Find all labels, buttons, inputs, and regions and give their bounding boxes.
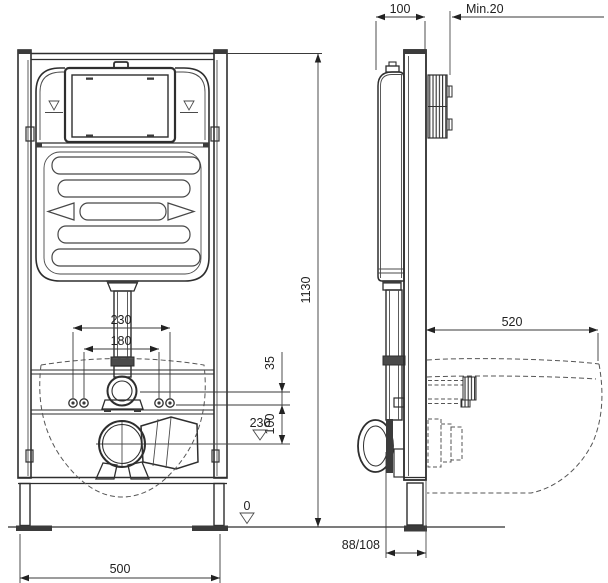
dim-frame-height: 1130: [227, 54, 322, 528]
level-marker-drain-label: 230: [250, 416, 271, 430]
inspection-window: [65, 68, 175, 142]
dim-bolts-inner-label: 180: [111, 334, 132, 348]
dim-frame-depth: 100: [376, 2, 425, 70]
level-marker-floor: 0: [240, 499, 254, 524]
dim-min-wall: Min.20: [452, 2, 604, 20]
side-view: [358, 11, 602, 558]
dim-supply-drain-chain: 35 100: [140, 352, 290, 444]
dim-frame-width-label: 500: [110, 562, 131, 576]
dim-outlet-distance-label: 88/108: [342, 538, 380, 552]
drawing-canvas: 100 Min.20 1130 520 230 180: [0, 0, 608, 583]
frame-rail-side: [404, 50, 427, 532]
dim-frame-depth-label: 100: [390, 2, 411, 16]
dim-frame-height-label: 1130: [299, 277, 313, 304]
technical-drawing: 100 Min.20 1130 520 230 180: [0, 0, 608, 583]
bowl-outline-side: [427, 359, 602, 493]
dim-bowl-projection-label: 520: [502, 315, 523, 329]
water-inlet-dashed: [428, 377, 476, 407]
level-marker-floor-label: 0: [244, 499, 251, 513]
dim-frame-width: 500: [20, 534, 220, 583]
dim-min-wall-label: Min.20: [466, 2, 504, 16]
flush-pipe-side: [383, 290, 405, 420]
dim-bolts-outer: 230: [73, 313, 170, 398]
drain-bend-side: [358, 419, 404, 477]
cistern-arrow-pattern: [48, 157, 200, 266]
outlet-connector-dashed: [428, 419, 462, 467]
front-view: [16, 50, 290, 531]
dim-bowl-projection: 520: [426, 315, 598, 361]
level-marker-drain: 230: [250, 416, 271, 440]
actuator-plate-section: [428, 11, 452, 138]
cistern: [36, 62, 209, 281]
dim-supply-offset-label: 35: [263, 356, 277, 370]
cistern-side: [378, 62, 404, 290]
dim-bolts-outer-label: 230: [111, 313, 132, 327]
bowl-outline-front: [40, 359, 206, 498]
